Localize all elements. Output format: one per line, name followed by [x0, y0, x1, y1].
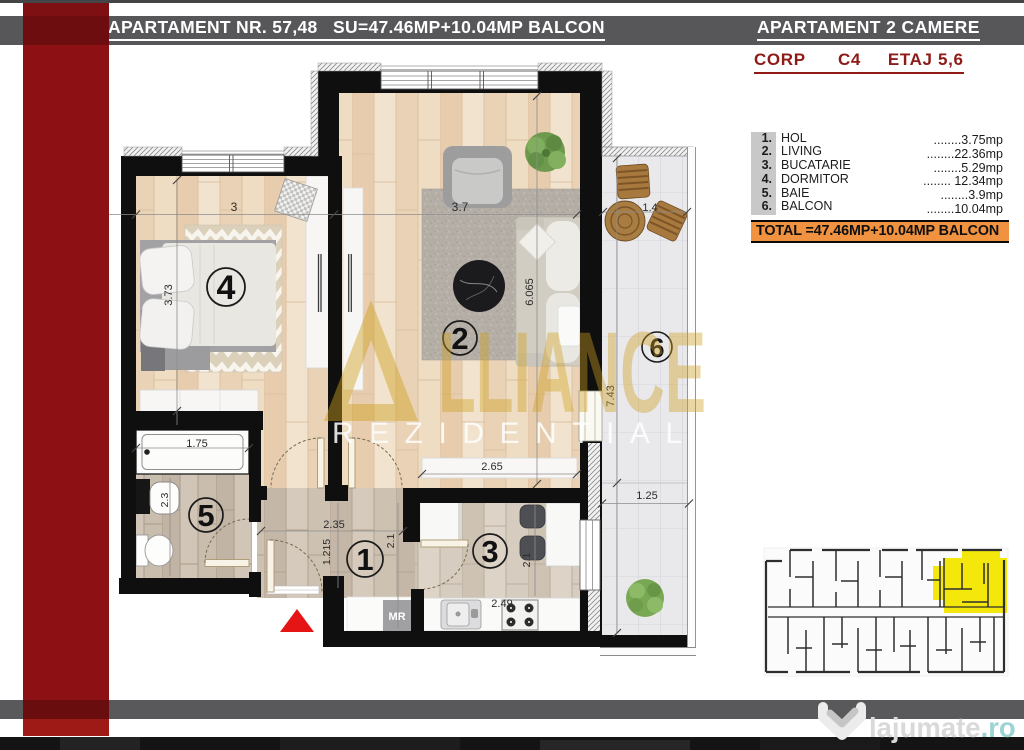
- svg-text:3: 3: [231, 200, 238, 214]
- svg-text:1.25: 1.25: [636, 490, 657, 502]
- svg-text:1: 1: [356, 542, 373, 577]
- svg-text:1.4: 1.4: [642, 202, 657, 214]
- svg-text:3: 3: [481, 534, 498, 569]
- svg-text:5: 5: [197, 498, 214, 533]
- svg-text:2.65: 2.65: [481, 461, 502, 473]
- svg-text:4: 4: [217, 269, 236, 307]
- svg-text:MR: MR: [388, 611, 405, 623]
- svg-text:3.7: 3.7: [452, 200, 469, 214]
- svg-text:2.35: 2.35: [323, 519, 344, 531]
- svg-text:2.3: 2.3: [159, 493, 171, 508]
- svg-text:REZIDENTIAL: REZIDENTIAL: [332, 417, 698, 450]
- svg-text:1.215: 1.215: [321, 539, 333, 565]
- svg-text:2.1: 2.1: [521, 553, 533, 568]
- svg-text:2.49: 2.49: [491, 598, 512, 610]
- svg-text:6.065: 6.065: [524, 278, 536, 306]
- svg-text:3.73: 3.73: [163, 284, 175, 305]
- svg-text:lajumate.ro: lajumate.ro: [869, 712, 1016, 743]
- svg-text:2.1: 2.1: [385, 534, 397, 549]
- svg-text:1.75: 1.75: [186, 438, 207, 450]
